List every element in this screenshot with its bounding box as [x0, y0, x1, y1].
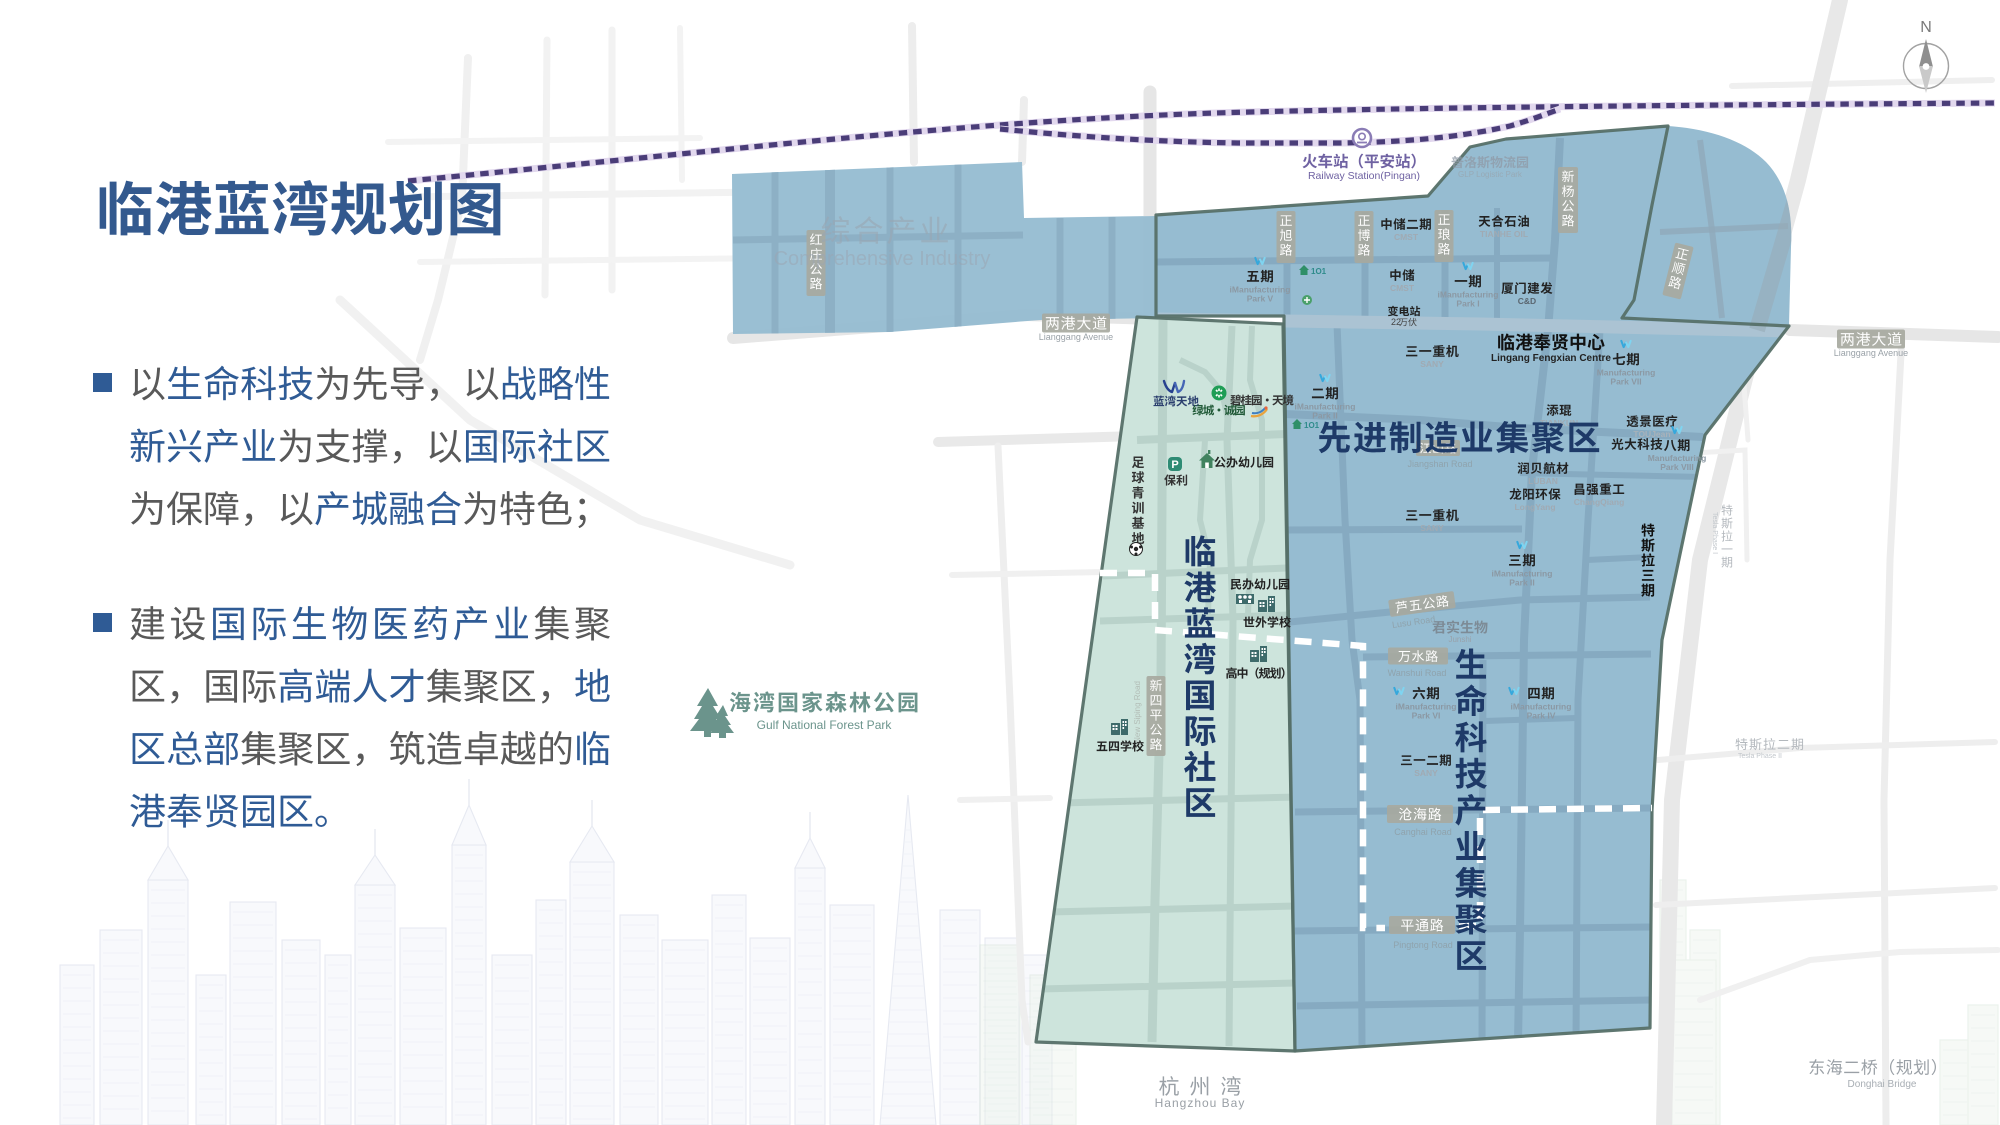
- svg-text:ChangQiang: ChangQiang: [1574, 497, 1625, 507]
- svg-text:Gulf National Forest Park: Gulf National Forest Park: [757, 718, 893, 732]
- svg-text:CMST: CMST: [1394, 232, 1419, 242]
- svg-text:Wanshui Road: Wanshui Road: [1388, 668, 1447, 678]
- svg-text:22: 22: [1391, 317, 1401, 327]
- svg-text:CMST: CMST: [1390, 283, 1415, 293]
- svg-text:Comprehensive Industry: Comprehensive Industry: [774, 248, 991, 270]
- svg-text:1O1: 1O1: [1304, 421, 1320, 430]
- svg-text:LongYang: LongYang: [1514, 502, 1555, 512]
- svg-text:Park VIII: Park VIII: [1660, 462, 1694, 472]
- svg-text:Lianggang Avenue: Lianggang Avenue: [1834, 348, 1908, 358]
- svg-text:New Siping Road: New Siping Road: [1133, 681, 1142, 743]
- svg-text:Park I: Park I: [1456, 299, 1479, 309]
- svg-text:Hangzhou Bay: Hangzhou Bay: [1155, 1096, 1246, 1110]
- svg-text:Park IV: Park IV: [1527, 711, 1556, 721]
- svg-text:Railway Station(Pingan): Railway Station(Pingan): [1308, 170, 1420, 182]
- svg-text:C&D: C&D: [1518, 296, 1536, 306]
- svg-text:Park VII: Park VII: [1610, 377, 1641, 387]
- svg-text:Canghai Road: Canghai Road: [1394, 827, 1452, 837]
- svg-text:Lingang Fengxian Centre: Lingang Fengxian Centre: [1491, 353, 1611, 364]
- svg-text:SANY: SANY: [1420, 523, 1444, 533]
- svg-text:P: P: [1171, 459, 1178, 471]
- svg-text:Donghai Bridge: Donghai Bridge: [1848, 1079, 1917, 1090]
- svg-text:Pingtong Road: Pingtong Road: [1393, 940, 1453, 950]
- svg-text:Park V: Park V: [1247, 294, 1274, 304]
- svg-text:N: N: [1920, 19, 1932, 36]
- svg-text:Tesla Phase I: Tesla Phase I: [1711, 512, 1718, 554]
- svg-text:Park VI: Park VI: [1412, 711, 1441, 721]
- svg-text:LUBAN: LUBAN: [1528, 476, 1558, 486]
- svg-text:TOUJean: TOUJean: [1633, 429, 1670, 439]
- svg-text:SANY: SANY: [1414, 768, 1438, 778]
- svg-text:TIANHE OIL: TIANHE OIL: [1480, 229, 1528, 239]
- svg-text:Jiangshan Road: Jiangshan Road: [1407, 459, 1472, 469]
- svg-text:Junshi: Junshi: [1448, 635, 1471, 644]
- svg-text:SANY: SANY: [1420, 359, 1444, 369]
- svg-text:GLP Logistic Park: GLP Logistic Park: [1458, 170, 1523, 179]
- svg-text:Park II: Park II: [1312, 411, 1338, 421]
- svg-text:Park II: Park II: [1509, 578, 1535, 588]
- svg-text:Lianggang Avenue: Lianggang Avenue: [1039, 332, 1113, 342]
- svg-text:Tesla Phase II: Tesla Phase II: [1738, 753, 1782, 760]
- svg-text:1O1: 1O1: [1311, 267, 1327, 276]
